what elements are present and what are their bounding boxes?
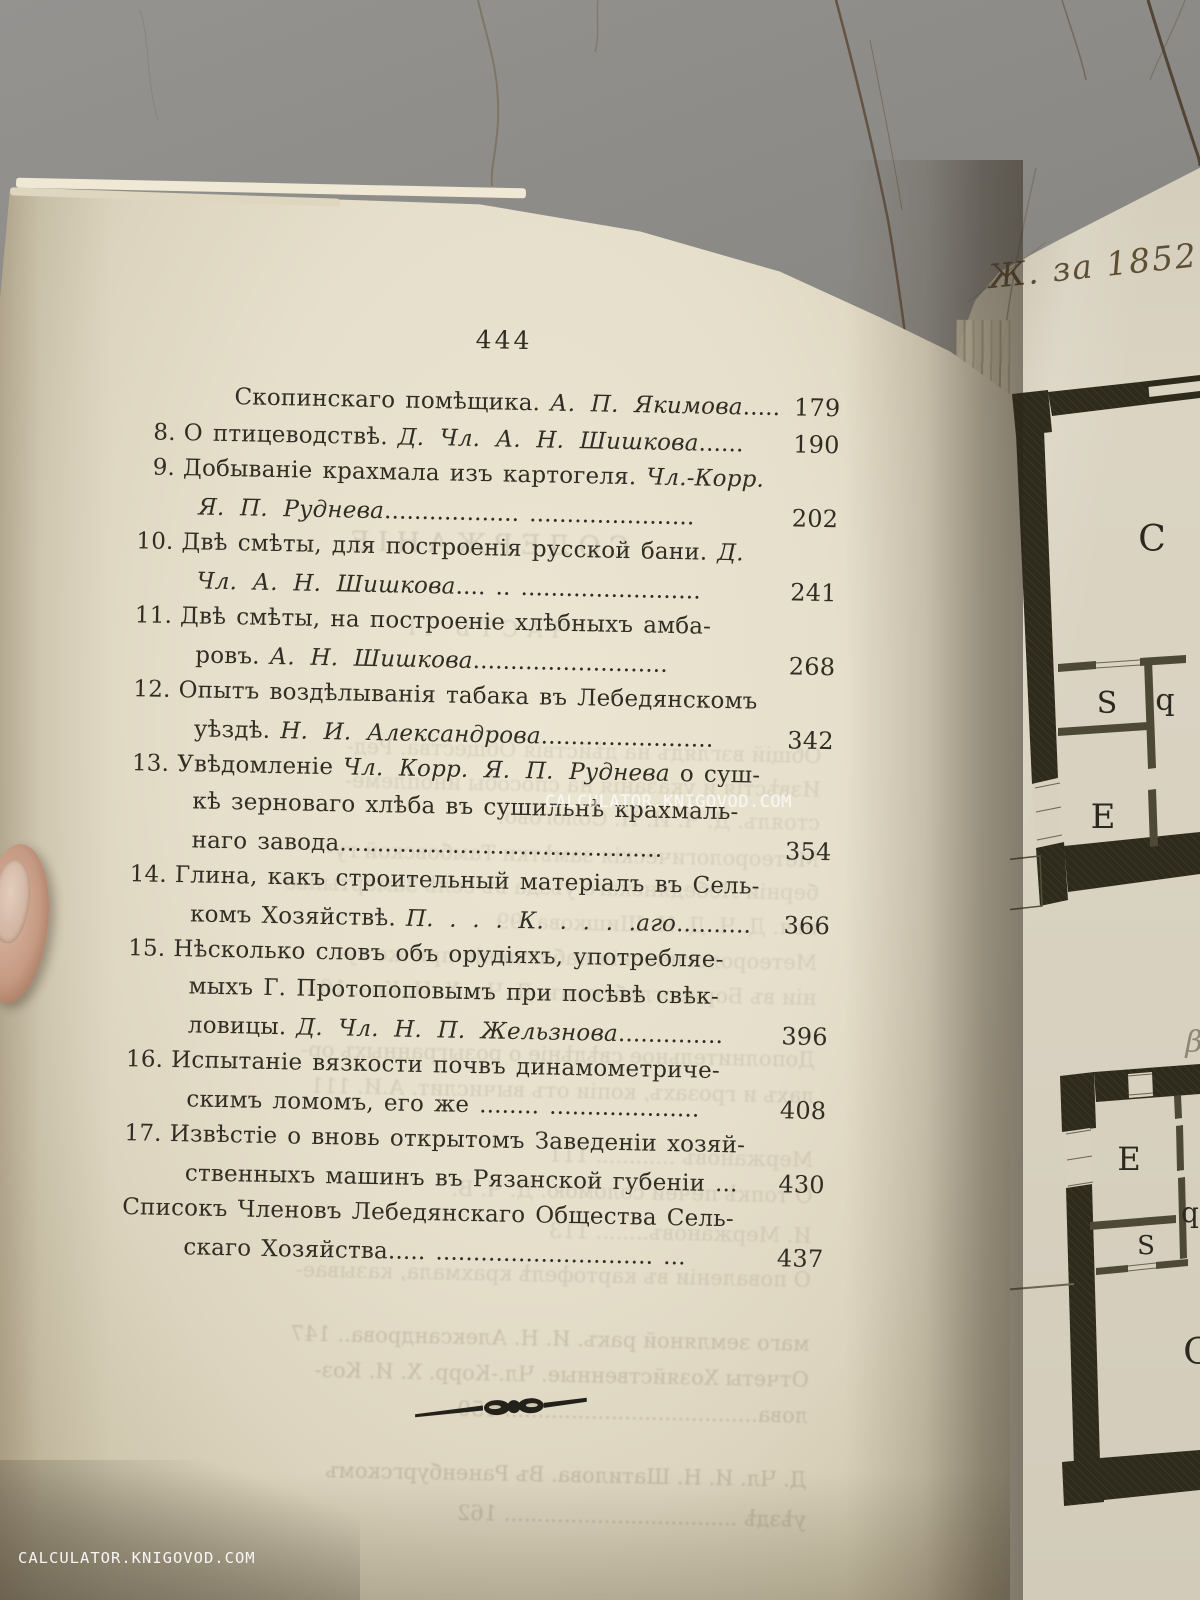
plan-bottom-building: E q S C <box>1002 1064 1200 1506</box>
toc-entry-page: 179 <box>782 393 841 422</box>
toc-entry-number <box>116 920 174 921</box>
toc-entry-number: 14. <box>117 861 176 888</box>
toc-entry-number: 10. <box>123 528 182 555</box>
toc-entry-page: 396 <box>770 1022 829 1051</box>
toc-entry-page <box>773 894 831 895</box>
toc-entry-page: 354 <box>773 837 832 866</box>
toc-entry-number: 17. <box>111 1120 170 1147</box>
toc-entry-number <box>123 587 181 588</box>
plan-script-annotation: β <box>1184 1025 1200 1060</box>
toc-entry-page <box>774 820 832 821</box>
toc-entry-page <box>781 487 839 488</box>
toc-entry-page <box>766 1227 824 1228</box>
toc-entry-number: 8. <box>126 419 185 446</box>
toc-entry-page: 202 <box>780 504 839 533</box>
toc-entry-page <box>769 1079 827 1080</box>
toc-entry-page: 190 <box>781 430 840 459</box>
tailpiece-ornament <box>405 1390 596 1431</box>
toc-entry-number <box>114 1031 172 1032</box>
toc-entry-page: 430 <box>767 1170 826 1199</box>
toc-entry-number <box>111 1179 169 1180</box>
toc-entry-number <box>117 846 175 847</box>
toc-entry-number <box>126 402 184 403</box>
watermark-center: CALCULATOR.KNIGOVOD.COM <box>545 792 792 812</box>
toc-entry-page <box>775 783 833 784</box>
toc-entry-page: 366 <box>772 911 831 940</box>
table-of-contents: 444 Скопинскаго помѣщика. А. П. Якимова.… <box>108 322 842 1336</box>
plan-room-label-c-bottom: C <box>1183 1332 1200 1373</box>
watermark-bottom-left: CALCULATOR.KNIGOVOD.COM <box>18 1549 256 1567</box>
toc-entry-number: 15. <box>115 935 174 962</box>
toc-entry-number <box>112 1105 170 1106</box>
toc-entry-number <box>124 513 182 514</box>
toc-entry-number: 12. <box>120 676 179 703</box>
page-number: 444 <box>475 325 532 355</box>
toc-entry-page: 268 <box>777 652 836 681</box>
toc-entry-page <box>776 709 834 710</box>
plan-room-label-p-top: q <box>1155 683 1174 718</box>
toc-entry-number <box>109 1253 167 1254</box>
plan-room-label-e-top: E <box>1091 797 1116 837</box>
toc-entry-page <box>779 561 837 562</box>
toc-entry-page <box>770 1005 828 1006</box>
toc-entry-number: 11. <box>122 602 181 629</box>
plan-room-label-c-top: C <box>1138 519 1166 560</box>
plan-room-label-e-bottom: E <box>1117 1140 1140 1178</box>
toc-entry-page: 437 <box>765 1244 824 1273</box>
toc-entry-number <box>115 992 173 993</box>
toc-entry-page: 342 <box>775 726 834 755</box>
toc-entries: Скопинскаго помѣщика. А. П. Якимова.....… <box>109 380 841 1282</box>
toc-entry-page <box>767 1153 825 1154</box>
thumbnail-nail <box>0 858 34 945</box>
plan-room-label-q-bottom: q <box>1181 1196 1199 1229</box>
gutter-shadow <box>845 160 1023 1600</box>
toc-entry-page: 241 <box>778 578 837 607</box>
plan-room-label-s-top: S <box>1097 686 1118 721</box>
toc-entry-number: 16. <box>113 1046 172 1073</box>
photo-of-book-page: C S q E β <box>0 0 1200 1600</box>
toc-entry-number <box>121 661 179 662</box>
toc-entry-page <box>778 635 836 636</box>
plan-room-label-s-bottom: S <box>1137 1231 1155 1261</box>
toc-entry-number <box>120 735 178 736</box>
toc-entry-page <box>771 968 829 969</box>
toc-entry-number <box>118 807 176 808</box>
toc-entry-number: 9. <box>125 454 184 481</box>
corner-shadow <box>0 1460 360 1600</box>
toc-entry-number: 13. <box>119 750 178 777</box>
toc-entry-page: 408 <box>768 1096 827 1125</box>
toc-entry-title: Скопинскаго помѣщика. А. П. Якимова.....… <box>184 383 782 421</box>
